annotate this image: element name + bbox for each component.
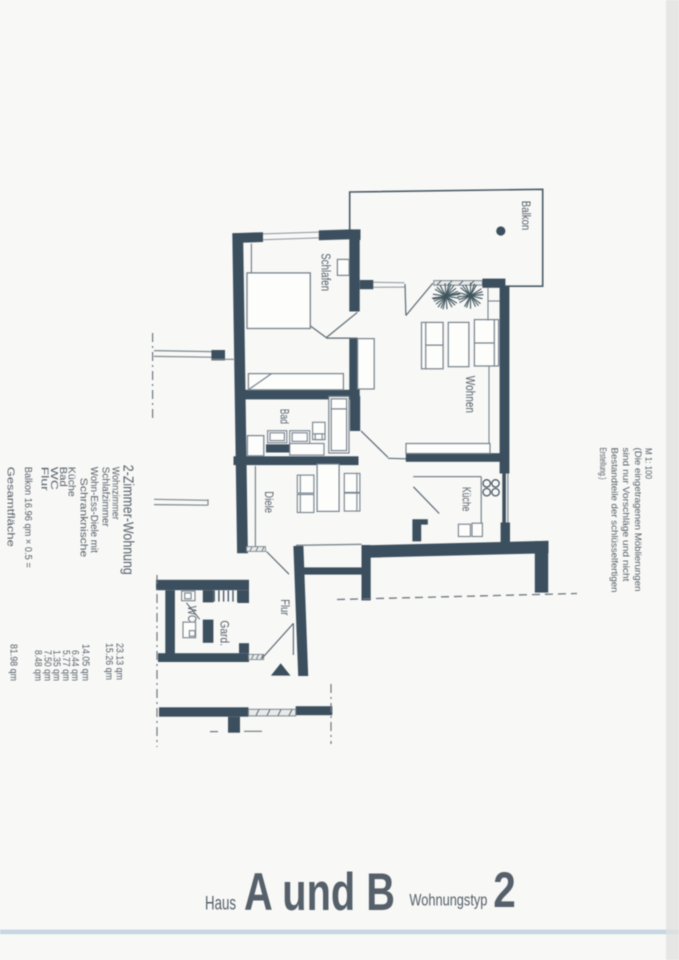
svg-text:Wohnungstyp: Wohnungstyp <box>409 891 487 910</box>
svg-text:sind nur Vorschläge und nicht: sind nur Vorschläge und nicht <box>620 448 631 582</box>
svg-text:Balkon: Balkon <box>519 201 531 231</box>
svg-text:Balkon 16.96 qm × 0.5 =: Balkon 16.96 qm × 0.5 = <box>22 467 33 568</box>
svg-text:(Die eingetragenen Möblierunge: (Die eingetragenen Möblierungen <box>632 448 643 592</box>
svg-text:81.98 qm: 81.98 qm <box>7 644 18 681</box>
svg-text:2: 2 <box>493 862 516 918</box>
svg-text:M 1: 100: M 1: 100 <box>643 448 654 479</box>
svg-text:Flur: Flur <box>278 599 290 615</box>
svg-text:Erstellung.): Erstellung.) <box>597 448 608 480</box>
svg-text:15.26 qm: 15.26 qm <box>103 643 114 680</box>
svg-text:Wohn-Ess-Diele mit: Wohn-Ess-Diele mit <box>88 467 99 553</box>
svg-text:2-Zimmer-Wohnung: 2-Zimmer-Wohnung <box>119 465 136 575</box>
svg-text:Wohnen: Wohnen <box>463 376 478 413</box>
svg-text:Diele: Diele <box>262 491 276 513</box>
svg-text:Gesamtfläche: Gesamtfläche <box>5 467 16 548</box>
svg-text:Haus: Haus <box>205 894 236 915</box>
svg-text:Flur: Flur <box>39 467 50 492</box>
svg-text:Küche: Küche <box>459 487 473 512</box>
svg-text:Schlafzimmer: Schlafzimmer <box>99 467 110 528</box>
svg-text:A und B: A und B <box>244 863 395 922</box>
svg-text:Gard.: Gard. <box>217 620 229 646</box>
svg-text:Bad: Bad <box>278 409 292 424</box>
svg-text:Schlafen: Schlafen <box>318 253 332 291</box>
svg-text:Bestandteile der schlüsselfert: Bestandteile der schlüsselfertigen <box>609 448 620 593</box>
svg-text:Schranknische: Schranknische <box>78 478 89 558</box>
svg-text:8.48 qm: 8.48 qm <box>32 650 43 681</box>
svg-text:WC: WC <box>185 606 197 622</box>
